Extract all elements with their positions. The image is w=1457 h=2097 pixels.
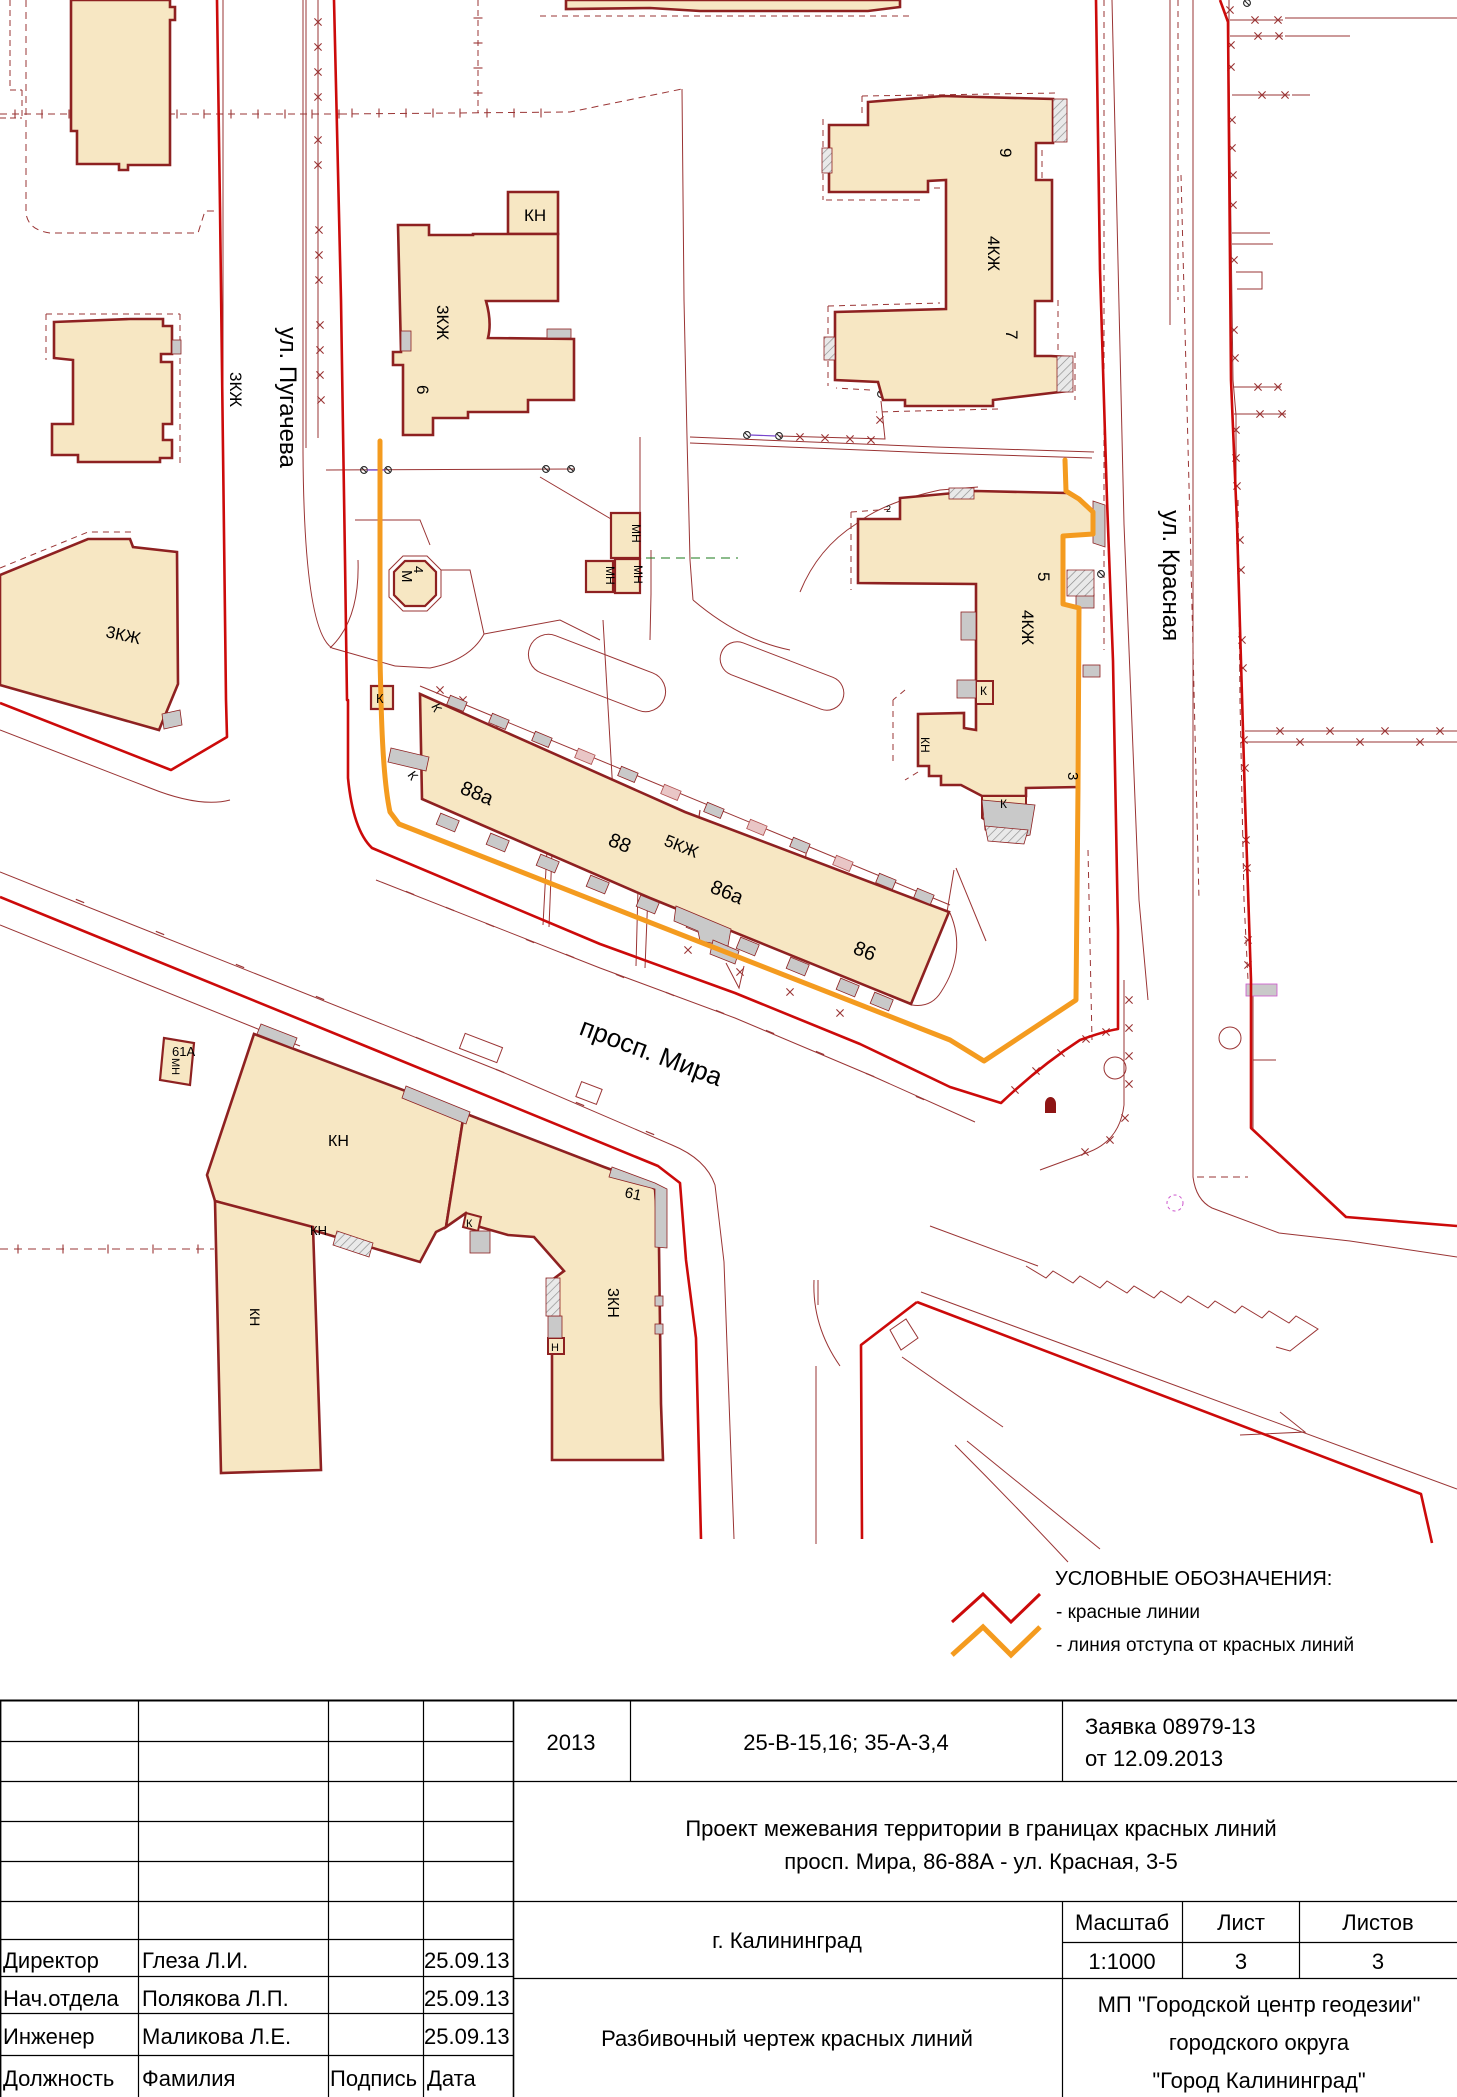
svg-text:Фамилия: Фамилия <box>142 2066 235 2091</box>
svg-text:61: 61 <box>623 1184 643 1204</box>
svg-text:Инженер: Инженер <box>3 2024 95 2049</box>
svg-text:К: К <box>466 1218 473 1230</box>
svg-text:ул. Пугачева: ул. Пугачева <box>274 327 301 468</box>
svg-text:9: 9 <box>996 148 1015 157</box>
svg-text:Листов: Листов <box>1342 1910 1413 1935</box>
svg-text:КН: КН <box>524 206 546 225</box>
svg-text:КН: КН <box>918 737 932 753</box>
svg-text:Проект межевания территории в: Проект межевания территории в границах к… <box>685 1816 1276 1841</box>
svg-text:3КЖ: 3КЖ <box>226 372 245 407</box>
svg-text:г. Калининград: г. Калининград <box>712 1928 862 1953</box>
svg-text:Н: Н <box>551 1342 559 1354</box>
svg-text:К: К <box>980 684 987 698</box>
svg-text:2013: 2013 <box>547 1730 596 1755</box>
svg-text:25.09.13: 25.09.13 <box>424 2024 510 2049</box>
svg-text:4: 4 <box>411 566 426 573</box>
svg-text:4КЖ: 4КЖ <box>984 236 1003 271</box>
svg-text:Нач.отдела: Нач.отдела <box>3 1986 119 2011</box>
svg-text:25.09.13: 25.09.13 <box>424 1986 510 2011</box>
svg-text:4КЖ: 4КЖ <box>1018 610 1037 645</box>
svg-text:МН: МН <box>169 1058 181 1075</box>
svg-text:КН: КН <box>310 1223 327 1238</box>
svg-text:3: 3 <box>1235 1949 1247 1974</box>
svg-text:Маликова Л.Е.: Маликова Л.Е. <box>142 2024 291 2049</box>
svg-text:КН: КН <box>328 1133 349 1150</box>
svg-text:2: 2 <box>886 504 891 514</box>
svg-text:5: 5 <box>1034 572 1053 581</box>
svg-text:Лист: Лист <box>1217 1910 1265 1935</box>
svg-text:городского округа: городского округа <box>1169 2030 1350 2055</box>
svg-text:Заявка 08979-13: Заявка 08979-13 <box>1085 1714 1256 1739</box>
svg-text:МП "Городской центр геодезии": МП "Городской центр геодезии" <box>1098 1992 1421 2017</box>
svg-text:3КЖ: 3КЖ <box>433 305 452 340</box>
svg-text:Должность: Должность <box>3 2066 114 2091</box>
svg-text:61А: 61А <box>172 1044 195 1059</box>
svg-text:25-В-15,16; 35-А-3,4: 25-В-15,16; 35-А-3,4 <box>743 1730 948 1755</box>
svg-text:К: К <box>1000 797 1007 811</box>
svg-text:ул. Красная: ул. Красная <box>1157 510 1184 641</box>
svg-text:3: 3 <box>1372 1949 1384 1974</box>
svg-text:Масштаб: Масштаб <box>1075 1910 1169 1935</box>
svg-text:1:1000: 1:1000 <box>1088 1949 1155 1974</box>
svg-text:КН: КН <box>247 1308 263 1326</box>
svg-text:3КН: 3КН <box>604 1288 621 1318</box>
svg-text:Полякова Л.П.: Полякова Л.П. <box>142 1986 289 2011</box>
svg-text:МН: МН <box>631 565 645 584</box>
svg-text:3: 3 <box>1064 772 1081 780</box>
svg-text:- линия отступа от красных лин: - линия отступа от красных линий <box>1056 1635 1354 1656</box>
svg-text:"Город Калининград": "Город Калининград" <box>1152 2068 1365 2093</box>
svg-text:6: 6 <box>413 385 432 394</box>
svg-text:7: 7 <box>1002 330 1021 339</box>
svg-text:от 12.09.2013: от 12.09.2013 <box>1085 1746 1223 1771</box>
svg-text:Глеза Л.И.: Глеза Л.И. <box>142 1948 248 1973</box>
svg-text:25.09.13: 25.09.13 <box>424 1948 510 1973</box>
svg-text:просп. Мира, 86-88А - ул. Крас: просп. Мира, 86-88А - ул. Красная, 3-5 <box>784 1849 1178 1874</box>
svg-text:Подпись: Подпись <box>330 2066 417 2091</box>
svg-text:К: К <box>376 691 384 706</box>
svg-text:УСЛОВНЫЕ ОБОЗНАЧЕНИЯ:: УСЛОВНЫЕ ОБОЗНАЧЕНИЯ: <box>1055 1568 1332 1590</box>
svg-text:- красные линии: - красные линии <box>1056 1602 1200 1623</box>
svg-text:Дата: Дата <box>427 2066 476 2091</box>
svg-text:Директор: Директор <box>3 1948 99 1973</box>
svg-text:Разбивочный чертеж красных лин: Разбивочный чертеж красных линий <box>601 2026 973 2051</box>
svg-text:МН: МН <box>603 566 617 585</box>
svg-text:МН: МН <box>629 524 643 543</box>
